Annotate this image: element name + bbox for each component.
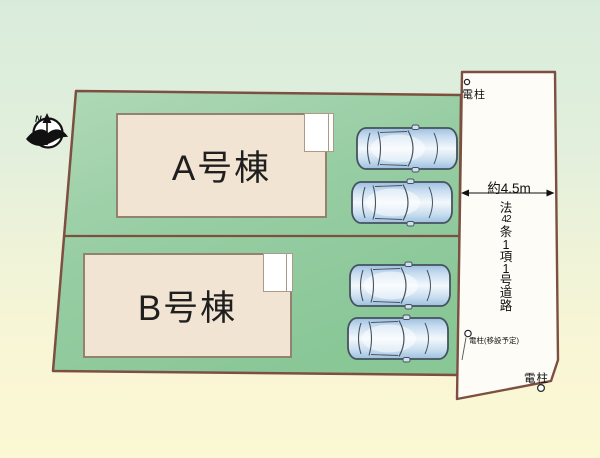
road-width-label: 約4.5m (464, 177, 554, 197)
car-icon (352, 179, 452, 226)
utility-pole-label-bottom: 電柱 (524, 370, 549, 386)
car-icon (357, 125, 457, 172)
road-designation-char: 道 (494, 287, 518, 299)
utility-pole-marker-top (464, 79, 469, 84)
building-b-balcony (263, 253, 293, 292)
building-a-balcony (304, 113, 334, 152)
compass-icon: N (26, 113, 68, 148)
site-plan-canvas: N A号棟 B号棟 電柱 約4.5m 法 42 条 1 項 1 号 (0, 0, 600, 458)
building-b: B号棟 (83, 253, 292, 358)
building-a: A号棟 (116, 113, 327, 218)
road-designation-char: 法 (494, 202, 518, 214)
road-designation-char: 路 (494, 300, 518, 312)
car-icon (348, 315, 448, 362)
building-b-label: B号棟 (138, 280, 237, 331)
road-designation-char: 条 (494, 226, 518, 238)
balcony-divider-line (286, 254, 287, 291)
road-designation-label: 法 42 条 1 項 1 号 道 路 (494, 202, 518, 312)
building-a-label: A号棟 (172, 140, 271, 191)
balcony-divider-line (328, 114, 329, 151)
utility-pole-relocation-label: 電柱(移設予定) (469, 335, 519, 346)
road-designation-char: 1 (494, 239, 518, 251)
utility-pole-label-top: 電柱 (462, 86, 486, 102)
car-icon (350, 262, 450, 309)
compass-north-letter: N (35, 114, 42, 124)
